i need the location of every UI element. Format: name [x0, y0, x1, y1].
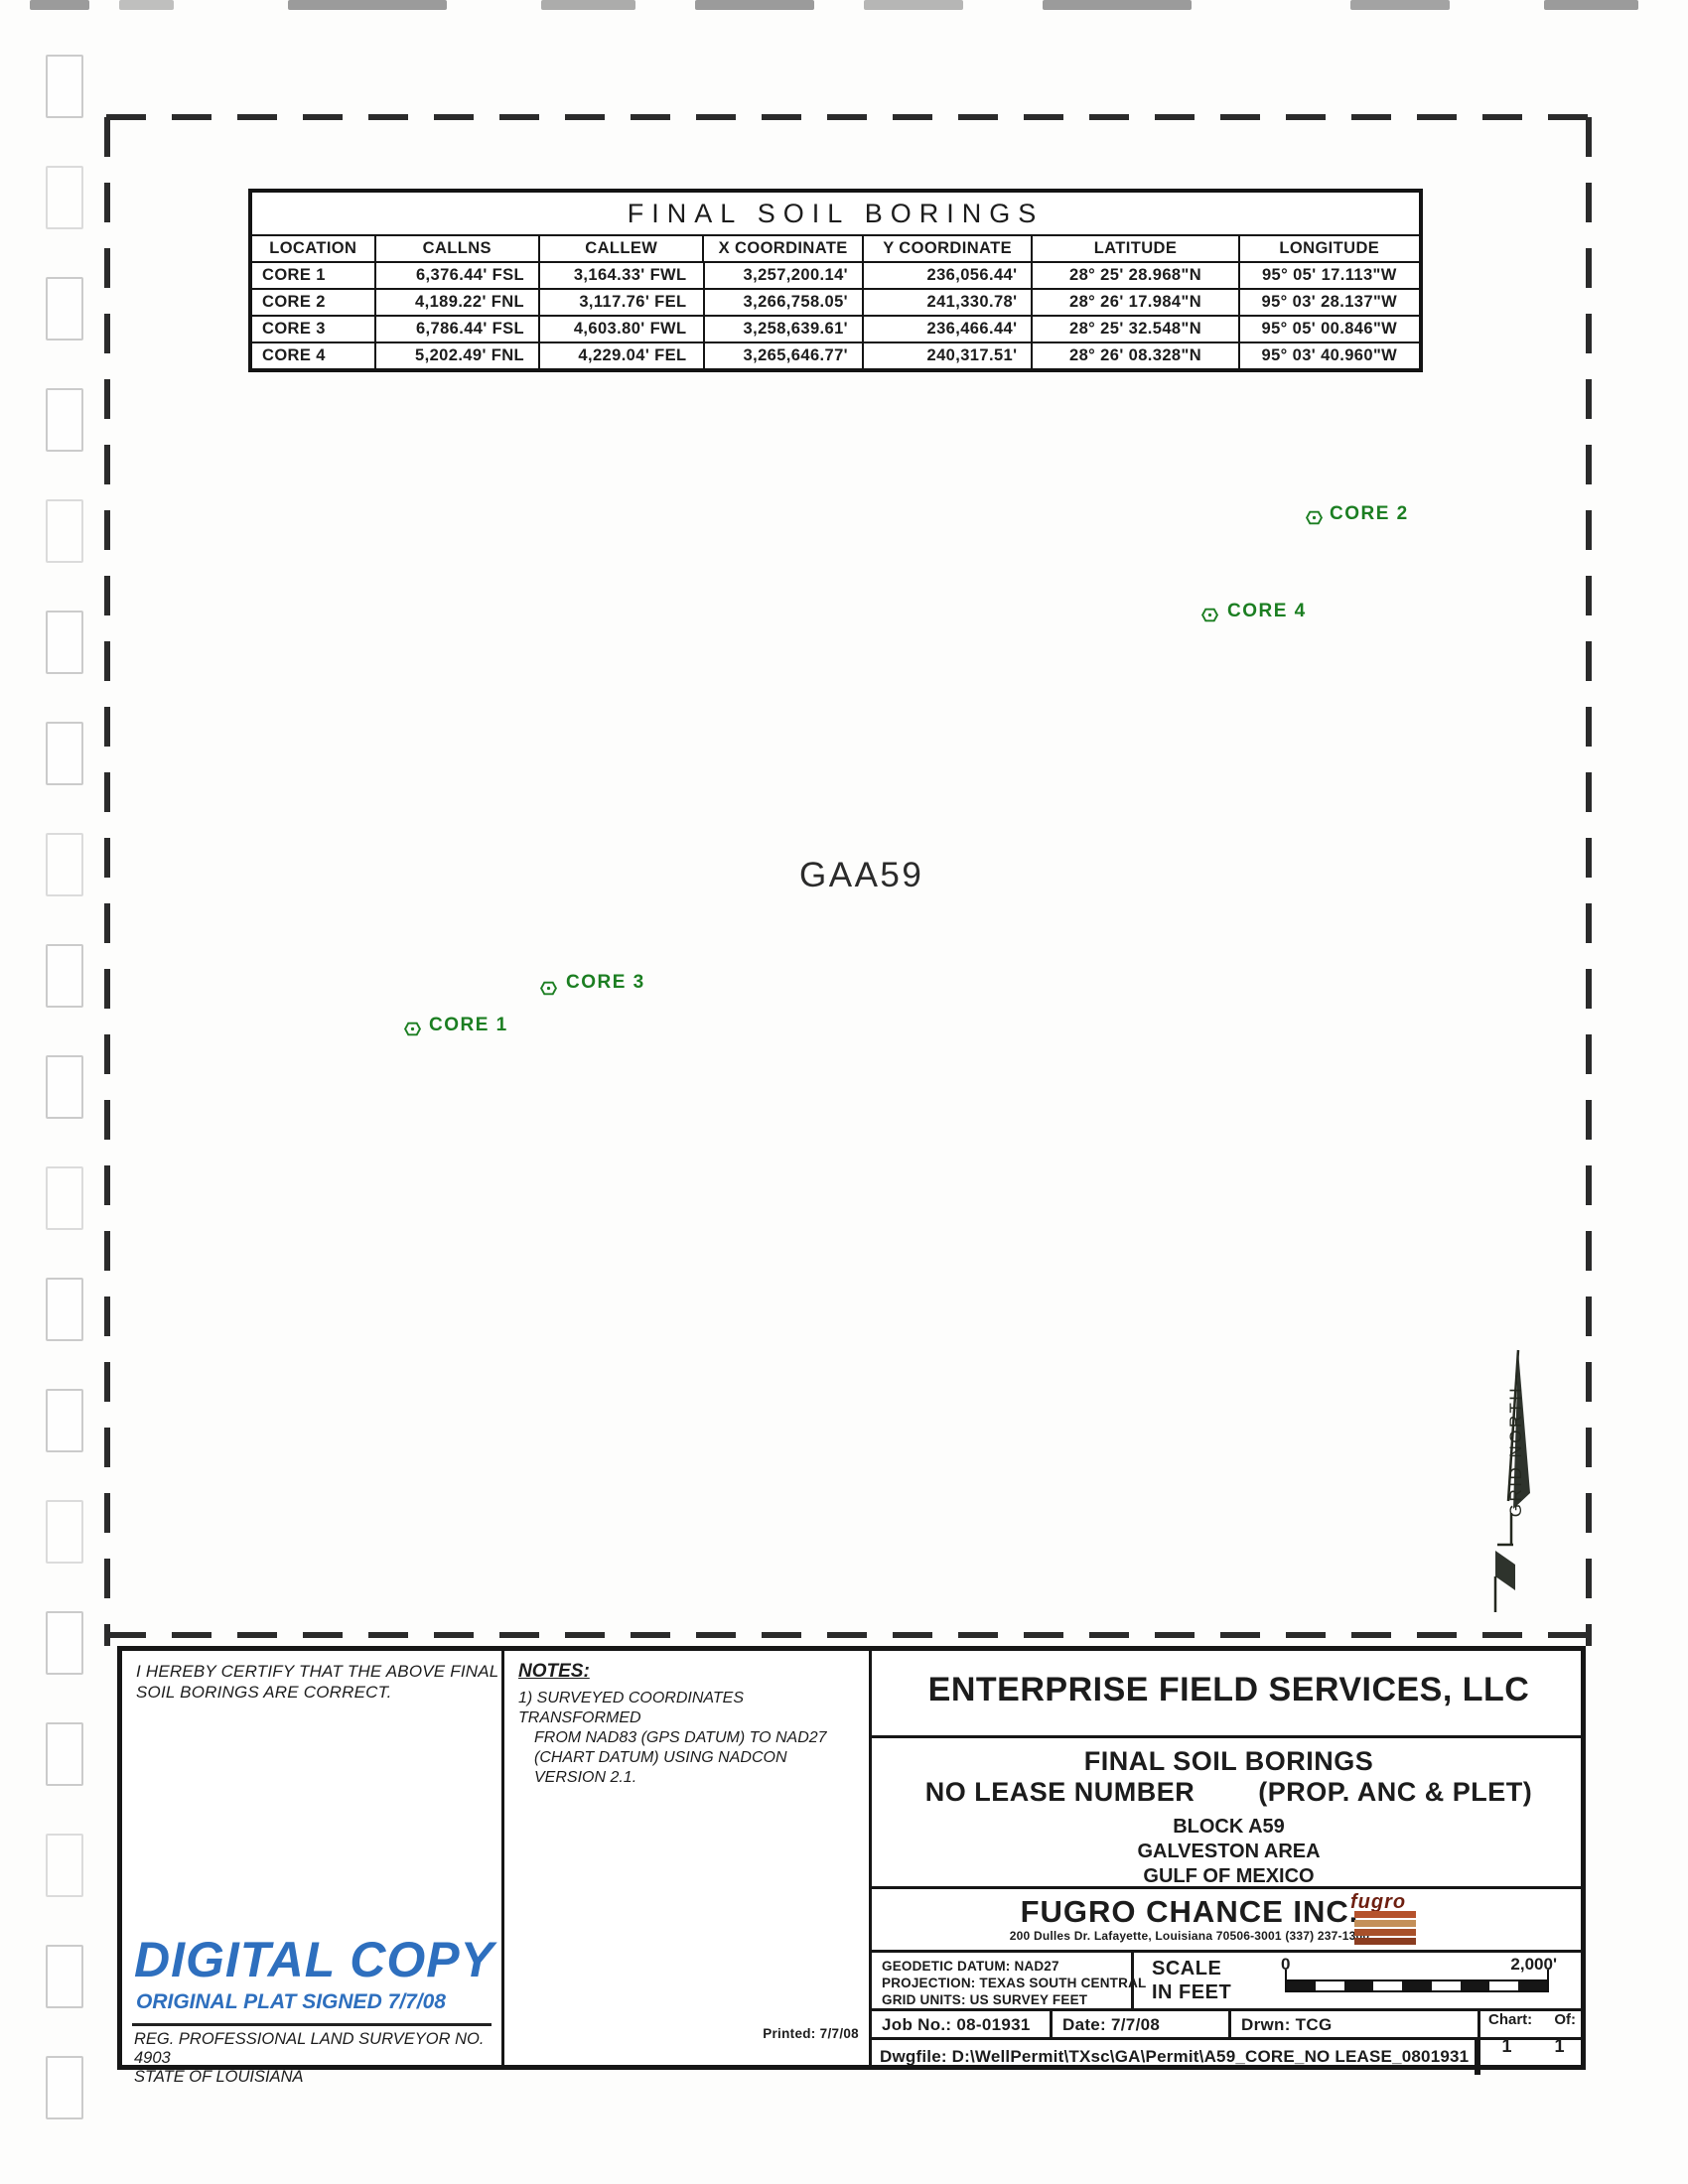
plat-sheet: FINAL SOIL BORINGS LOCATION CALLNS CALLE… [0, 0, 1688, 2184]
scan-smudge [1544, 0, 1638, 10]
subject-title: FINAL SOIL BORINGS [872, 1746, 1586, 1777]
grid-north-arrow-icon [1458, 1342, 1547, 1620]
hole-punch [46, 499, 83, 563]
scale-bar [1285, 1979, 1549, 1992]
lease-text: NO LEASE NUMBER [925, 1777, 1196, 1808]
core-marker-icon [1201, 607, 1218, 623]
hole-punch [46, 1389, 83, 1452]
region-text: GULF OF MEXICO [872, 1864, 1586, 1889]
hole-punch [46, 55, 83, 118]
hole-punch [46, 833, 83, 896]
cell-y: 241,330.78' [862, 290, 1031, 315]
core-label: CORE 2 [1330, 503, 1409, 525]
surveyor-text: REG. PROFESSIONAL LAND SURVEYOR NO. 4903… [134, 2030, 501, 2087]
cell-callns: 6,786.44' FSL [374, 317, 538, 341]
of-number: 1 [1554, 2036, 1564, 2057]
core-4-marker-group: CORE 4 [1201, 607, 1218, 628]
scan-smudge [1043, 0, 1192, 10]
notes-line: VERSION 2.1. [518, 1768, 869, 1788]
title-block: I HEREBY CERTIFY THAT THE ABOVE FINAL SO… [117, 1646, 1586, 2070]
grid-north-label: GRID NORTH [1506, 1352, 1526, 1551]
cell-callns: 6,376.44' FSL [374, 263, 538, 288]
cell-callns: 5,202.49' FNL [374, 343, 538, 368]
notes-text: 1) SURVEYED COORDINATES TRANSFORMED FROM… [518, 1689, 869, 1788]
hole-punch [46, 722, 83, 785]
area-text: GALVESTON AREA [872, 1840, 1586, 1864]
company-name: ENTERPRISE FIELD SERVICES, LLC [872, 1671, 1586, 1709]
hole-punch [46, 1166, 83, 1230]
core-1-marker-group: CORE 1 [404, 1021, 421, 1042]
core-marker-icon [1306, 509, 1323, 526]
job-number: Job No.: 08-01931 [872, 2011, 1053, 2037]
table-title: FINAL SOIL BORINGS [252, 193, 1419, 234]
core-2-marker-group: CORE 2 [1306, 509, 1323, 531]
col-header: CALLEW [538, 236, 702, 261]
scan-smudge [288, 0, 447, 10]
logo-stripe [1354, 1929, 1416, 1936]
surveyor-line: REG. PROFESSIONAL LAND SURVEYOR NO. 4903 [134, 2030, 501, 2068]
hole-punch [46, 944, 83, 1008]
digital-copy-stamp: DIGITAL COPY [134, 1931, 494, 1988]
subject-line2: NO LEASE NUMBER (PROP. ANC & PLET) [872, 1777, 1586, 1808]
hole-punch [46, 2056, 83, 2119]
core-label: CORE 4 [1227, 601, 1307, 622]
hole-punch [46, 277, 83, 341]
core-3-marker-group: CORE 3 [540, 980, 557, 1002]
col-header: X COORDINATE [702, 236, 861, 261]
hole-punch [46, 611, 83, 674]
datum-cell: GEODETIC DATUM: NAD27 PROJECTION: TEXAS … [872, 1953, 1134, 2008]
fugro-logo-icon: fugro [1350, 1895, 1420, 1947]
block-label: GAA59 [799, 856, 923, 895]
certification-text: I HEREBY CERTIFY THAT THE ABOVE FINAL SO… [136, 1661, 498, 1703]
cell-lat: 28° 26' 08.328"N [1031, 343, 1237, 368]
table-row: CORE 4 5,202.49' FNL 4,229.04' FEL 3,265… [252, 341, 1419, 368]
hole-punch [46, 1722, 83, 1786]
datum-scale-row: GEODETIC DATUM: NAD27 PROJECTION: TEXAS … [872, 1953, 1586, 2008]
scale-label: SCALE IN FEET [1152, 1957, 1231, 2004]
cell-callew: 3,164.33' FWL [538, 263, 702, 288]
prop-text: (PROP. ANC & PLET) [1258, 1777, 1532, 1808]
digital-copy-subtitle: ORIGINAL PLAT SIGNED 7/7/08 [136, 1990, 446, 2014]
firm-row: FUGRO CHANCE INC. 200 Dulles Dr. Lafayet… [872, 1889, 1586, 1953]
scan-smudge [695, 0, 814, 10]
table-row: CORE 3 6,786.44' FSL 4,603.80' FWL 3,258… [252, 315, 1419, 341]
certification-panel: I HEREBY CERTIFY THAT THE ABOVE FINAL SO… [122, 1651, 504, 2065]
date: Date: 7/7/08 [1053, 2011, 1231, 2037]
plat-border-right [1586, 117, 1592, 1646]
cell-x: 3,257,200.14' [703, 263, 862, 288]
core-label: CORE 1 [429, 1015, 508, 1036]
plat-border-top [106, 114, 1589, 120]
subject-row: FINAL SOIL BORINGS NO LEASE NUMBER (PROP… [872, 1738, 1586, 1889]
col-header: CALLNS [374, 236, 538, 261]
cell-y: 236,056.44' [862, 263, 1031, 288]
hole-punch [46, 1500, 83, 1564]
col-header: Y COORDINATE [862, 236, 1031, 261]
cell-lon: 95° 05' 00.846"W [1238, 317, 1419, 341]
block-text: BLOCK A59 [872, 1815, 1586, 1840]
plat-border-bottom [106, 1632, 1589, 1638]
cell-callew: 3,117.76' FEL [538, 290, 702, 315]
scan-smudge [30, 0, 89, 10]
core-marker-icon [404, 1021, 421, 1037]
cell-lon: 95° 03' 28.137"W [1238, 290, 1419, 315]
cell-lon: 95° 03' 40.960"W [1238, 343, 1419, 368]
hole-punch [46, 1278, 83, 1341]
chart-label: Chart: [1488, 2011, 1532, 2028]
scan-smudge [119, 0, 174, 10]
cell-callew: 4,603.80' FWL [538, 317, 702, 341]
projection: PROJECTION: TEXAS SOUTH CENTRAL [882, 1975, 1131, 1991]
cell-location: CORE 4 [252, 343, 374, 368]
scan-smudge [864, 0, 963, 10]
surveyor-line: STATE OF LOUISIANA [134, 2068, 501, 2087]
cell-lat: 28° 25' 28.968"N [1031, 263, 1237, 288]
certification-line: I HEREBY CERTIFY THAT THE ABOVE FINAL [136, 1661, 498, 1682]
company-row: ENTERPRISE FIELD SERVICES, LLC [872, 1651, 1586, 1738]
cell-location: CORE 1 [252, 263, 374, 288]
logo-stripe [1354, 1920, 1416, 1927]
chart-of-labels: Chart: Of: [1480, 2008, 1586, 2028]
hole-punch [46, 1945, 83, 2008]
hole-punch [46, 166, 83, 229]
scale-word: SCALE [1152, 1957, 1231, 1980]
cell-y: 240,317.51' [862, 343, 1031, 368]
notes-line: (CHART DATUM) USING NADCON [518, 1748, 869, 1768]
geodetic-datum: GEODETIC DATUM: NAD27 [882, 1958, 1131, 1975]
col-header: LONGITUDE [1238, 236, 1419, 261]
chart-number: 1 [1501, 2036, 1511, 2057]
table-row: CORE 2 4,189.22' FNL 3,117.76' FEL 3,266… [252, 288, 1419, 315]
cell-lat: 28° 26' 17.984"N [1031, 290, 1237, 315]
grid-units: GRID UNITS: US SURVEY FEET [882, 1991, 1131, 2008]
cell-callns: 4,189.22' FNL [374, 290, 538, 315]
cell-x: 3,265,646.77' [703, 343, 862, 368]
hole-punch [46, 1834, 83, 1897]
cell-x: 3,266,758.05' [703, 290, 862, 315]
cell-callew: 4,229.04' FEL [538, 343, 702, 368]
signature-line [132, 2023, 492, 2026]
cell-location: CORE 2 [252, 290, 374, 315]
hole-punch [46, 1055, 83, 1119]
notes-panel: NOTES: 1) SURVEYED COORDINATES TRANSFORM… [504, 1651, 872, 2065]
logo-stripe [1354, 1911, 1416, 1918]
printed-date: Printed: 7/7/08 [763, 2026, 859, 2041]
drawn-by: Drwn: TCG [1231, 2011, 1477, 2037]
cell-x: 3,258,639.61' [703, 317, 862, 341]
scale-cell: SCALE IN FEET 0 2,000' [1134, 1953, 1586, 2008]
chart-of-cell: Chart: Of: 1 1 [1477, 2008, 1586, 2075]
core-label: CORE 3 [566, 972, 645, 994]
notes-heading: NOTES: [518, 1661, 590, 1683]
col-header: LATITUDE [1031, 236, 1237, 261]
table-row: CORE 1 6,376.44' FSL 3,164.33' FWL 3,257… [252, 261, 1419, 288]
dwgfile-path: Dwgfile: D:\WellPermit\TXsc\GA\Permit\A5… [872, 2040, 1477, 2075]
logo-stripe [1354, 1938, 1416, 1945]
plat-border-left [104, 117, 110, 1646]
scale-max: 2,000' [1468, 1955, 1557, 1975]
cell-location: CORE 3 [252, 317, 374, 341]
table-header-row: LOCATION CALLNS CALLEW X COORDINATE Y CO… [252, 234, 1419, 261]
notes-line: 1) SURVEYED COORDINATES TRANSFORMED [518, 1689, 869, 1728]
col-header: LOCATION [252, 236, 374, 261]
scale-units: IN FEET [1152, 1980, 1231, 2004]
scan-smudge [1350, 0, 1450, 10]
notes-line: FROM NAD83 (GPS DATUM) TO NAD27 [518, 1728, 869, 1748]
soil-borings-table: FINAL SOIL BORINGS LOCATION CALLNS CALLE… [248, 189, 1423, 372]
certification-line: SOIL BORINGS ARE CORRECT. [136, 1682, 498, 1703]
chart-of-values: 1 1 [1480, 2028, 1586, 2057]
scan-smudge [541, 0, 635, 10]
cell-y: 236,466.44' [862, 317, 1031, 341]
cell-lat: 28° 25' 32.548"N [1031, 317, 1237, 341]
hole-punch [46, 388, 83, 452]
of-label: Of: [1554, 2011, 1576, 2028]
hole-punch [46, 1611, 83, 1675]
cell-lon: 95° 05' 17.113"W [1238, 263, 1419, 288]
title-block-right: ENTERPRISE FIELD SERVICES, LLC FINAL SOI… [872, 1651, 1586, 2065]
core-marker-icon [540, 980, 557, 997]
